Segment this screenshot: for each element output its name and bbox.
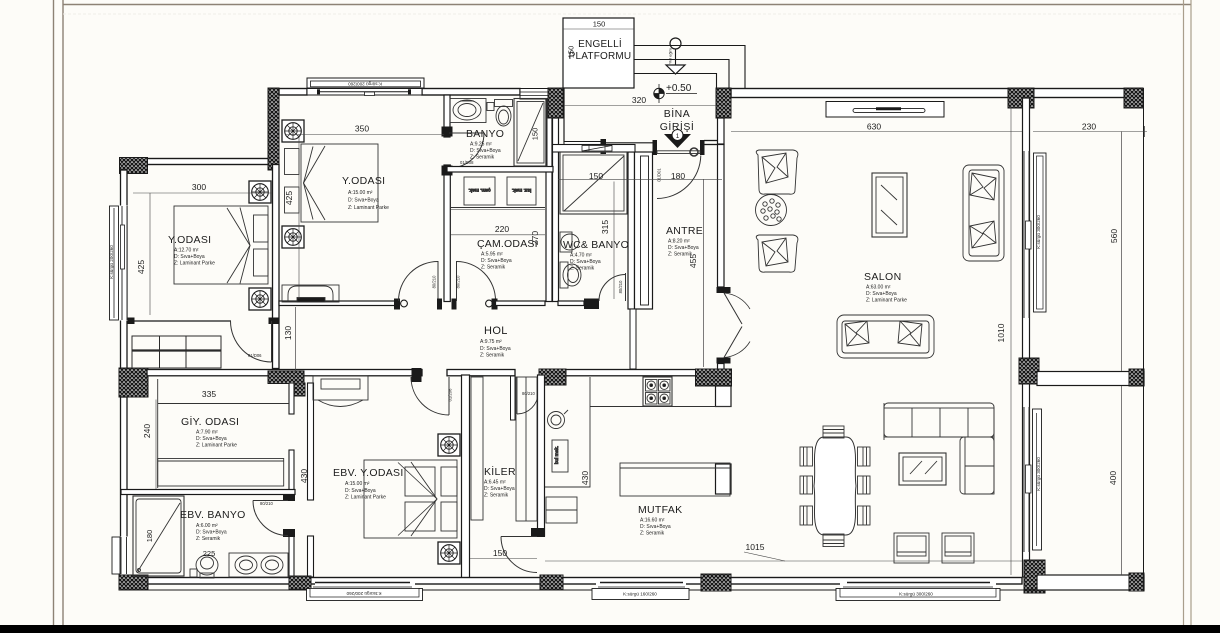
svg-text:1: 1 — [676, 133, 680, 140]
svg-text:Y.ODASI: Y.ODASI — [168, 234, 211, 246]
svg-text:220: 220 — [495, 224, 509, 234]
svg-text:D: Sıva+Boya: D: Sıva+Boya — [174, 254, 205, 260]
svg-text:K:sürgü 200/260: K:sürgü 200/260 — [109, 245, 114, 279]
svg-text:Z: Seramik: Z: Seramik — [196, 536, 221, 542]
svg-text:GİY. ODASI: GİY. ODASI — [181, 415, 239, 428]
svg-text:KİLER: KİLER — [484, 465, 516, 478]
svg-text:D: Sıva+Boya: D: Sıva+Boya — [470, 148, 501, 154]
svg-text:ENGELLİ: ENGELLİ — [578, 37, 622, 50]
svg-text:A:63.00 m²: A:63.00 m² — [866, 285, 891, 291]
svg-text:Z: Seramik: Z: Seramik — [484, 493, 509, 499]
svg-text:A:8.20 m²: A:8.20 m² — [668, 239, 690, 245]
svg-text:150: 150 — [593, 20, 606, 29]
svg-text:1015: 1015 — [746, 542, 765, 552]
svg-text:180: 180 — [145, 530, 154, 543]
svg-text:300: 300 — [192, 182, 206, 192]
svg-text:560: 560 — [1109, 229, 1119, 243]
svg-text:Z: Laminant Parke: Z: Laminant Parke — [196, 443, 237, 449]
svg-text:ANTRE: ANTRE — [666, 225, 703, 237]
svg-text:Z: Seramik: Z: Seramik — [481, 265, 506, 271]
svg-text:225: 225 — [203, 549, 216, 558]
svg-text:K:sürgü 160/260: K:sürgü 160/260 — [623, 592, 657, 597]
svg-text:80/210: 80/210 — [456, 275, 461, 288]
svg-text:D: Sıva+Boya: D: Sıva+Boya — [480, 346, 511, 352]
svg-text:EBV. BANYO: EBV. BANYO — [180, 509, 246, 521]
svg-text:D: Sıva+Boya: D: Sıva+Boya — [345, 488, 376, 494]
svg-text:150: 150 — [567, 46, 576, 59]
svg-text:SALON: SALON — [864, 271, 902, 283]
svg-text:D: Sıva+Boya: D: Sıva+Boya — [481, 258, 512, 264]
svg-text:D: Sıva+Boya: D: Sıva+Boya — [484, 486, 515, 492]
svg-text:bul mak.: bul mak. — [554, 446, 560, 464]
svg-text:150: 150 — [531, 128, 540, 141]
svg-text:130: 130 — [283, 326, 293, 340]
svg-text:Z: Seramik: Z: Seramik — [480, 353, 505, 359]
svg-text:425: 425 — [136, 260, 146, 274]
svg-text:D: Sıva+Boya: D: Sıva+Boya — [196, 530, 227, 536]
svg-text:Z: Laminant Parke: Z: Laminant Parke — [866, 298, 907, 304]
svg-text:320: 320 — [632, 95, 646, 105]
svg-text:A:12.70 m²: A:12.70 m² — [174, 248, 199, 254]
svg-text:EBV. Y.ODASI: EBV. Y.ODASI — [333, 467, 404, 479]
svg-text:80/210: 80/210 — [618, 280, 623, 293]
svg-text:630: 630 — [867, 122, 881, 132]
svg-text:350: 350 — [355, 124, 369, 134]
svg-text:Z: Seramik: Z: Seramik — [640, 531, 665, 537]
svg-text:400: 400 — [1108, 471, 1118, 485]
svg-text:A:15.00 m²: A:15.00 m² — [348, 190, 373, 196]
svg-text:315: 315 — [600, 220, 610, 234]
svg-text:Z: Laminant Parke: Z: Laminant Parke — [345, 495, 386, 501]
svg-text:D: Sıva+Boya: D: Sıva+Boya — [348, 198, 379, 204]
svg-text:%8 eğim: %8 eğim — [668, 48, 673, 64]
svg-text:150: 150 — [493, 548, 507, 558]
svg-text:01/206: 01/206 — [448, 388, 453, 401]
svg-text:240: 240 — [142, 424, 152, 438]
svg-text:A:6.00 m²: A:6.00 m² — [196, 523, 218, 529]
svg-text:K:sürgü 200/260: K:sürgü 200/260 — [348, 82, 382, 87]
svg-text:80/210: 80/210 — [522, 391, 535, 396]
svg-text:A:4.70 m²: A:4.70 m² — [570, 253, 592, 259]
svg-text:430: 430 — [580, 471, 590, 485]
svg-text:ÇAM.ODASI: ÇAM.ODASI — [477, 238, 538, 250]
svg-text:K:sürgü 300/260: K:sürgü 300/260 — [1036, 215, 1041, 249]
svg-text:D: Sıva+Boya: D: Sıva+Boya — [570, 259, 601, 265]
svg-text:A:9.75 m²: A:9.75 m² — [480, 339, 502, 345]
svg-text:A:5.95 m²: A:5.95 m² — [481, 252, 503, 258]
svg-text:80/210: 80/210 — [260, 501, 273, 506]
svg-text:335: 335 — [202, 389, 216, 399]
svg-text:Z: Seramik: Z: Seramik — [570, 266, 595, 272]
svg-text:BİNA: BİNA — [664, 107, 691, 120]
svg-text:Y.ODASI: Y.ODASI — [342, 175, 385, 187]
svg-text:A:9.25 m²: A:9.25 m² — [470, 142, 492, 148]
svg-text:D: Sıva+Boya: D: Sıva+Boya — [196, 436, 227, 442]
svg-text:01/D06: 01/D06 — [248, 353, 262, 358]
svg-text:BANYO: BANYO — [466, 128, 504, 140]
svg-text:425: 425 — [284, 191, 294, 205]
svg-text:01/D08: 01/D08 — [460, 160, 474, 165]
svg-text:430: 430 — [299, 469, 309, 483]
svg-text:+0.50: +0.50 — [666, 83, 692, 94]
svg-text:K:tsürgü 200/260: K:tsürgü 200/260 — [346, 591, 381, 596]
svg-text:Z: Laminant Parke: Z: Laminant Parke — [348, 205, 389, 211]
svg-text:80/210: 80/210 — [432, 275, 437, 288]
svg-text:A:16.60 m²: A:16.60 m² — [640, 518, 665, 524]
svg-text:Z: Seramik: Z: Seramik — [470, 155, 495, 161]
svg-text:kur. mak.: kur. mak. — [512, 187, 531, 193]
svg-text:HOL: HOL — [484, 325, 508, 337]
svg-text:Z: Laminant Parke: Z: Laminant Parke — [174, 261, 215, 267]
svg-text:270: 270 — [530, 231, 540, 245]
svg-text:455: 455 — [688, 254, 698, 268]
svg-text:A:7.90 m²: A:7.90 m² — [196, 430, 218, 436]
svg-text:A:15.00 m²: A:15.00 m² — [345, 481, 370, 487]
svg-text:K:sürgü 300/260: K:sürgü 300/260 — [899, 592, 933, 597]
svg-text:K:sürgü 300/260: K:sürgü 300/260 — [1036, 457, 1041, 491]
svg-text:WC& BANYO: WC& BANYO — [563, 239, 629, 251]
svg-text:A:6.45 m²: A:6.45 m² — [484, 480, 506, 486]
svg-text:230: 230 — [1082, 122, 1096, 132]
svg-text:1010: 1010 — [996, 323, 1006, 342]
svg-text:D: Sıva+Boya: D: Sıva+Boya — [866, 291, 897, 297]
svg-text:MUTFAK: MUTFAK — [638, 504, 682, 516]
svg-text:çam. mak.: çam. mak. — [468, 187, 490, 193]
svg-text:PLATFORMU: PLATFORMU — [569, 51, 632, 62]
svg-text:D: Sıva+Boya: D: Sıva+Boya — [668, 245, 699, 251]
svg-text:D: Sıva+Boya: D: Sıva+Boya — [640, 524, 671, 530]
